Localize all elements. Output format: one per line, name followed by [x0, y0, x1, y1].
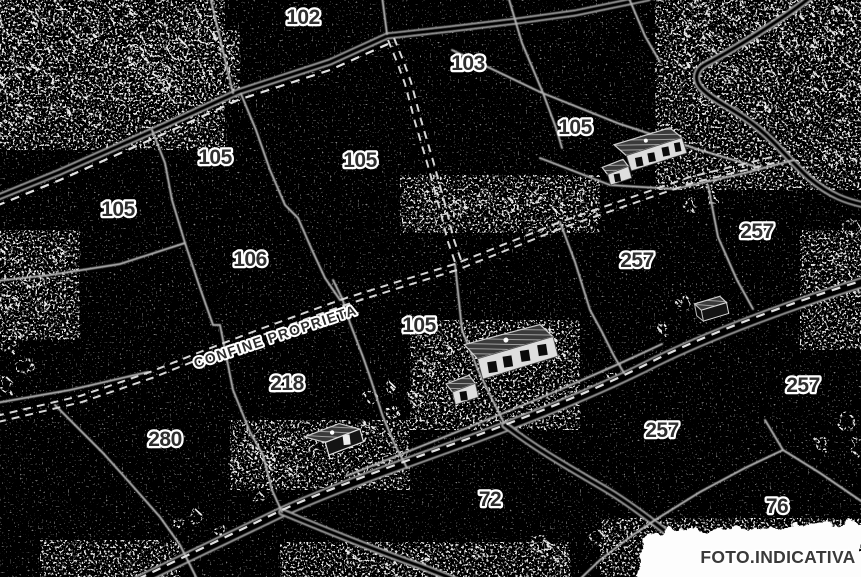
- parcel-label: 103: [451, 52, 485, 75]
- cadastral-map-canvas: 102 103 105 105 105 105 257 106 257 105 …: [0, 0, 861, 577]
- parcel-label: 106: [233, 248, 267, 271]
- parcel-label: 257: [645, 419, 679, 442]
- parcel-label: 72: [479, 488, 501, 511]
- parcel-label: 105: [343, 149, 377, 172]
- foto-indicativa-label: FOTO.INDICATIVA: [700, 547, 855, 567]
- parcel-label: 257: [620, 249, 654, 272]
- parcel-label: 105: [402, 314, 436, 337]
- parcel-label: 257: [786, 374, 820, 397]
- parcel-label: 280: [148, 428, 182, 451]
- watermark-area: FOTO.INDICATIVA: [637, 521, 861, 577]
- parcel-label: 105: [558, 116, 592, 139]
- cadastral-map: 102 103 105 105 105 105 257 106 257 105 …: [0, 0, 861, 577]
- parcel-label: 102: [286, 6, 320, 29]
- parcel-label: 105: [198, 146, 232, 169]
- parcel-label: 76: [766, 495, 788, 518]
- parcel-label: 257: [740, 220, 774, 243]
- parcel-label: 218: [270, 372, 304, 395]
- parcel-label: 105: [101, 198, 135, 221]
